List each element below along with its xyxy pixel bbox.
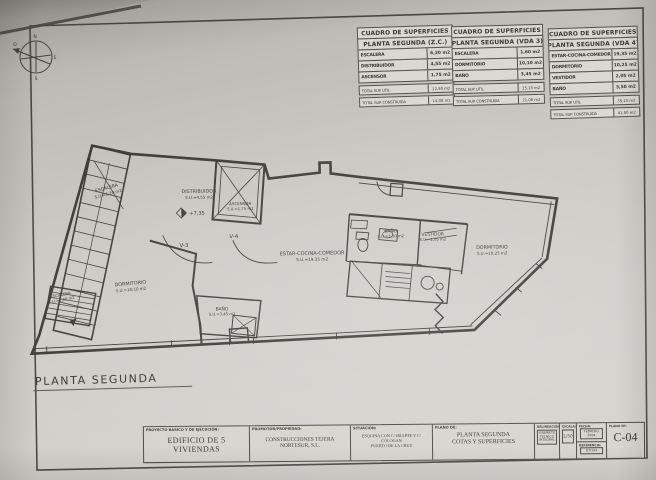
- escala-header: ESCALA:: [562, 424, 574, 428]
- surface-table-vda3: CUADRO DE SUPERFICIES PLANTA SEGUNDA (VD…: [451, 24, 545, 106]
- row-label: TOTAL SUP. UTIL: [454, 83, 518, 93]
- label-bano-vda3-area: S.U.=3,45 m2: [209, 311, 236, 316]
- delineacion-l3: INTEGRAL: [538, 439, 556, 443]
- titleblock-fecha-referencia: FECHA: FEBRERO 2004 REFERENCIA: 03/143: [577, 423, 607, 458]
- row-value: 2,05 m2: [612, 71, 638, 82]
- row-value: 21,08 m2: [518, 95, 544, 104]
- table-total-util: TOTAL SUP. UTIL15,15 m2: [452, 82, 544, 94]
- row-label: DORMITORIO: [453, 59, 517, 71]
- photographed-floor-plan-sheet: N S E O: [0, 0, 656, 480]
- level-marker: [176, 208, 186, 218]
- referencia-header: REFERENCIA:: [579, 443, 604, 447]
- label-distribuidor-area: S.U.=4,55 m2: [185, 195, 214, 200]
- delineacion-header: DELINEACIÓN:: [537, 425, 557, 429]
- delineacion-value: GABINETE TECNICO INTEGRAL: [537, 430, 557, 445]
- situacion-line2: PUERTO DE LA CRUZ: [353, 443, 430, 449]
- situacion-line1: ESQUINA CON C/ IRIARTE Y C/ CÓLOGAN: [353, 433, 430, 444]
- label-vestidor-area: S.U.=2,05 m2: [420, 236, 447, 241]
- row-value: 1,60 m2: [517, 47, 543, 58]
- label-estar-area: S.U.=19,35 m2: [296, 257, 328, 263]
- row-label: TOTAL SUP. UTIL: [360, 84, 428, 94]
- wall-inner-lines: [32, 180, 557, 349]
- row-value: 10,10 m2: [517, 58, 543, 69]
- row-value: 19,35 m2: [611, 49, 637, 60]
- floor-plan: ESCALERA S.U.=6,20 m2 DISTRIBUIDOR S.U.=…: [28, 138, 560, 354]
- titleblock-situacion: SITUACIÓN: ESQUINA CON C/ IRIARTE Y C/ C…: [351, 425, 433, 461]
- titleblock-referencia: REFERENCIA: 03/143: [577, 441, 606, 459]
- surface-table-zc: CUADRO DE SUPERFICIES PLANTA SEGUNDA (Z.…: [357, 25, 455, 108]
- fecha-value: FEBRERO 2004: [580, 428, 603, 439]
- label-v3: V-3: [179, 243, 189, 249]
- row-value: 41,00 m2: [613, 108, 639, 117]
- compass-n-label: N: [33, 34, 36, 40]
- row-label: BAÑO: [453, 70, 517, 82]
- row-value: 10,25 m2: [612, 60, 638, 71]
- plano-num-header: PLANO Nº:: [609, 424, 642, 428]
- situacion-header: SITUACIÓN:: [353, 426, 430, 431]
- titleblock-fecha: FECHA: FEBRERO 2004: [577, 423, 606, 441]
- compass-s-label: S: [35, 76, 38, 82]
- escala-value: 1/50: [562, 429, 574, 443]
- row-label: ASCENSOR: [359, 70, 427, 82]
- label-v4: V-4: [229, 234, 239, 240]
- row-label: TOTAL SUP. CONSTRUIDA: [551, 108, 613, 118]
- plano-de-line2: COTAS Y SUPERFICIES: [435, 439, 532, 447]
- promotor-value: CONSTRUCCIONES TEJERA NORTESUR, S.L.: [252, 436, 348, 449]
- title-block: PROYECTO BÁSICO Y DE EJECUCIÓN: EDIFICIO…: [143, 422, 645, 463]
- plano-de-header: PLANO DE:: [435, 425, 532, 430]
- distribuidor-walls: [149, 181, 394, 346]
- row-value: 12,50 m2: [428, 84, 454, 93]
- row-value: 6,20 m2: [426, 48, 452, 59]
- compass-o-label: O: [13, 42, 17, 48]
- row-value: 3,50 m2: [612, 82, 638, 93]
- titleblock-escala: ESCALA: 1/50: [560, 423, 577, 458]
- titleblock-plano-num: PLANO Nº: C-04: [607, 423, 644, 458]
- plano-de-value: PLANTA SEGUNDA COTAS Y SUPERFICIES: [435, 432, 532, 447]
- situacion-value: ESQUINA CON C/ IRIARTE Y C/ CÓLOGAN PUER…: [353, 433, 430, 449]
- label-dormitorio-der-area: S.U.=10,25 m2: [477, 250, 508, 256]
- titleblock-proyecto: PROYECTO BÁSICO Y DE EJECUCIÓN: EDIFICIO…: [144, 426, 250, 462]
- proyecto-header: PROYECTO BÁSICO Y DE EJECUCIÓN:: [146, 427, 247, 432]
- row-label: TOTAL SUP. UTIL: [551, 96, 613, 106]
- referencia-value: 03/143: [580, 447, 603, 455]
- titleblock-plano-de: PLANO DE: PLANTA SEGUNDA COTAS Y SUPERFI…: [433, 424, 535, 460]
- row-value: 4,55 m2: [427, 59, 453, 70]
- row-value: 35,15 m2: [613, 96, 639, 105]
- label-level: +7,35: [189, 211, 204, 217]
- row-label: TOTAL SUP. CONSTRUIDA: [360, 96, 428, 106]
- row-value: 14,08 m2: [428, 96, 454, 105]
- row-value: 1,75 m2: [427, 70, 453, 81]
- row-label: VESTIDOR: [550, 71, 612, 83]
- row-label: ESTAR-COCINA-COMEDOR: [549, 49, 611, 61]
- row-label: DORMITORIO: [550, 60, 612, 72]
- plano-num-value: C-04: [609, 430, 642, 445]
- compass-e-label: E: [54, 55, 57, 61]
- kitchen-counter: [346, 259, 451, 305]
- row-value: 15,15 m2: [517, 83, 543, 92]
- label-ascensor-area: S.U.=1,75 m2: [227, 206, 254, 211]
- table-total-util: TOTAL SUP. UTIL35,15 m2: [550, 95, 640, 108]
- row-value: 3,45 m2: [517, 69, 543, 80]
- row-label: BAÑO: [550, 82, 612, 94]
- surface-table-vda4: CUADRO DE SUPERFICIES PLANTA SEGUNDA (VD…: [548, 26, 641, 120]
- label-bano-vda4-area: S.U.=3,50 m2: [377, 233, 404, 238]
- row-label: ESCALERA: [453, 48, 517, 60]
- proyecto-value: EDIFICIO DE 5 VIVIENDAS: [146, 435, 247, 454]
- promotor-header: PROMOTOR/PROPIEDAD:: [252, 426, 348, 431]
- table-row: BAÑO3,45 m2: [452, 68, 544, 82]
- elevator-shaft: [211, 160, 265, 225]
- row-label: TOTAL SUP. CONSTRUIDA: [454, 95, 518, 105]
- table-total-util: TOTAL SUP. UTIL12,50 m2: [359, 82, 455, 95]
- titleblock-delineacion: DELINEACIÓN: GABINETE TECNICO INTEGRAL: [535, 424, 560, 459]
- titleblock-promotor: PROMOTOR/PROPIEDAD: CONSTRUCCIONES TEJER…: [250, 425, 351, 461]
- north-arrow-icon: N S E O: [13, 34, 57, 82]
